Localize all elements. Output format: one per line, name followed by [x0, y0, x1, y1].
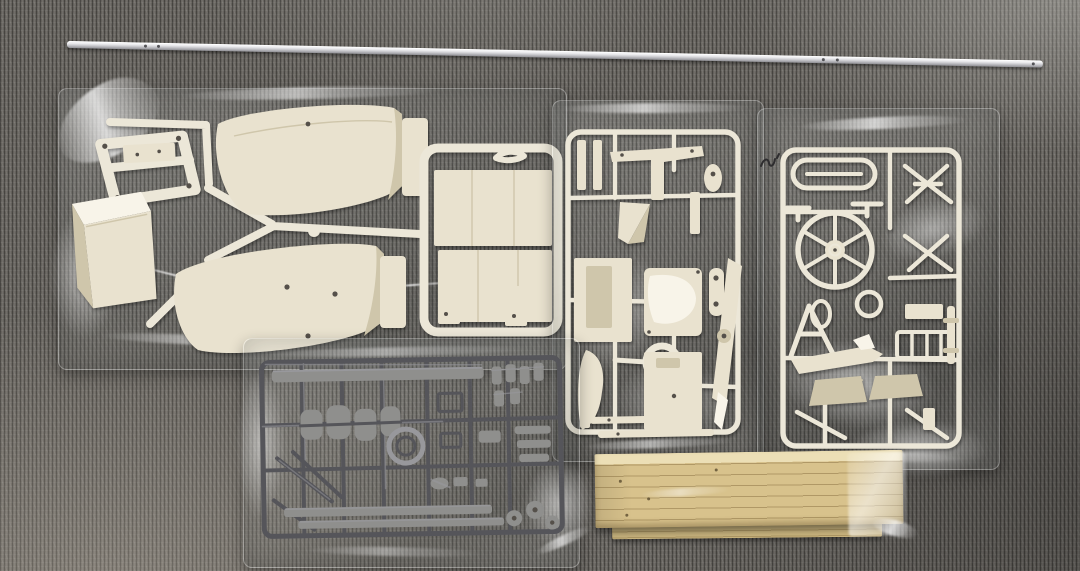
seat-part — [644, 268, 702, 336]
oval-loop-part — [793, 160, 875, 188]
small-ring-part — [857, 292, 881, 316]
sprue-a-drawing — [58, 88, 565, 368]
panel-plate-part — [574, 258, 632, 342]
wood-wrap-highlight — [847, 452, 906, 537]
dark-blob-row — [300, 404, 401, 442]
rod-hole — [144, 45, 147, 48]
rod-hole — [822, 58, 825, 61]
wedge-part — [618, 202, 650, 244]
rod-hole — [157, 45, 160, 48]
ladder-frame-part — [897, 332, 953, 358]
dark-diagonals — [273, 451, 342, 530]
hull-panel-top — [216, 105, 428, 215]
tailplane-part — [610, 146, 704, 200]
chassis-frame-part — [100, 135, 195, 202]
dark-fitting-grid — [491, 363, 544, 407]
sprue-b-drawing — [552, 100, 762, 460]
deck-panel-sprue — [424, 148, 558, 332]
wood-knot — [647, 497, 650, 500]
open-box-part — [69, 191, 158, 310]
photo-scene — [0, 0, 1080, 571]
carpet-thread — [758, 150, 782, 172]
dark-small-cluster — [430, 477, 487, 490]
wood-knot — [715, 468, 718, 471]
a-frame-part — [791, 306, 833, 356]
sprue-c-drawing — [757, 108, 998, 468]
rod-hole — [1032, 62, 1035, 65]
block-part — [905, 304, 943, 319]
rod-hole — [836, 58, 839, 61]
teardrop-part — [704, 164, 722, 192]
dark-wheels — [506, 500, 559, 530]
sprue-d-drawing — [243, 338, 578, 566]
sprue-c-frame — [783, 150, 959, 446]
wood-knot — [625, 514, 628, 517]
link-part — [709, 268, 724, 316]
dark-ring — [389, 429, 424, 464]
float-part — [791, 334, 883, 374]
aluminum-rod — [67, 41, 1043, 68]
spoked-wheel-part — [798, 213, 872, 287]
wood-knot — [619, 480, 622, 483]
diagonal-struts — [905, 166, 951, 270]
trapezoid-pans — [809, 374, 923, 406]
bottom-details — [797, 408, 947, 446]
